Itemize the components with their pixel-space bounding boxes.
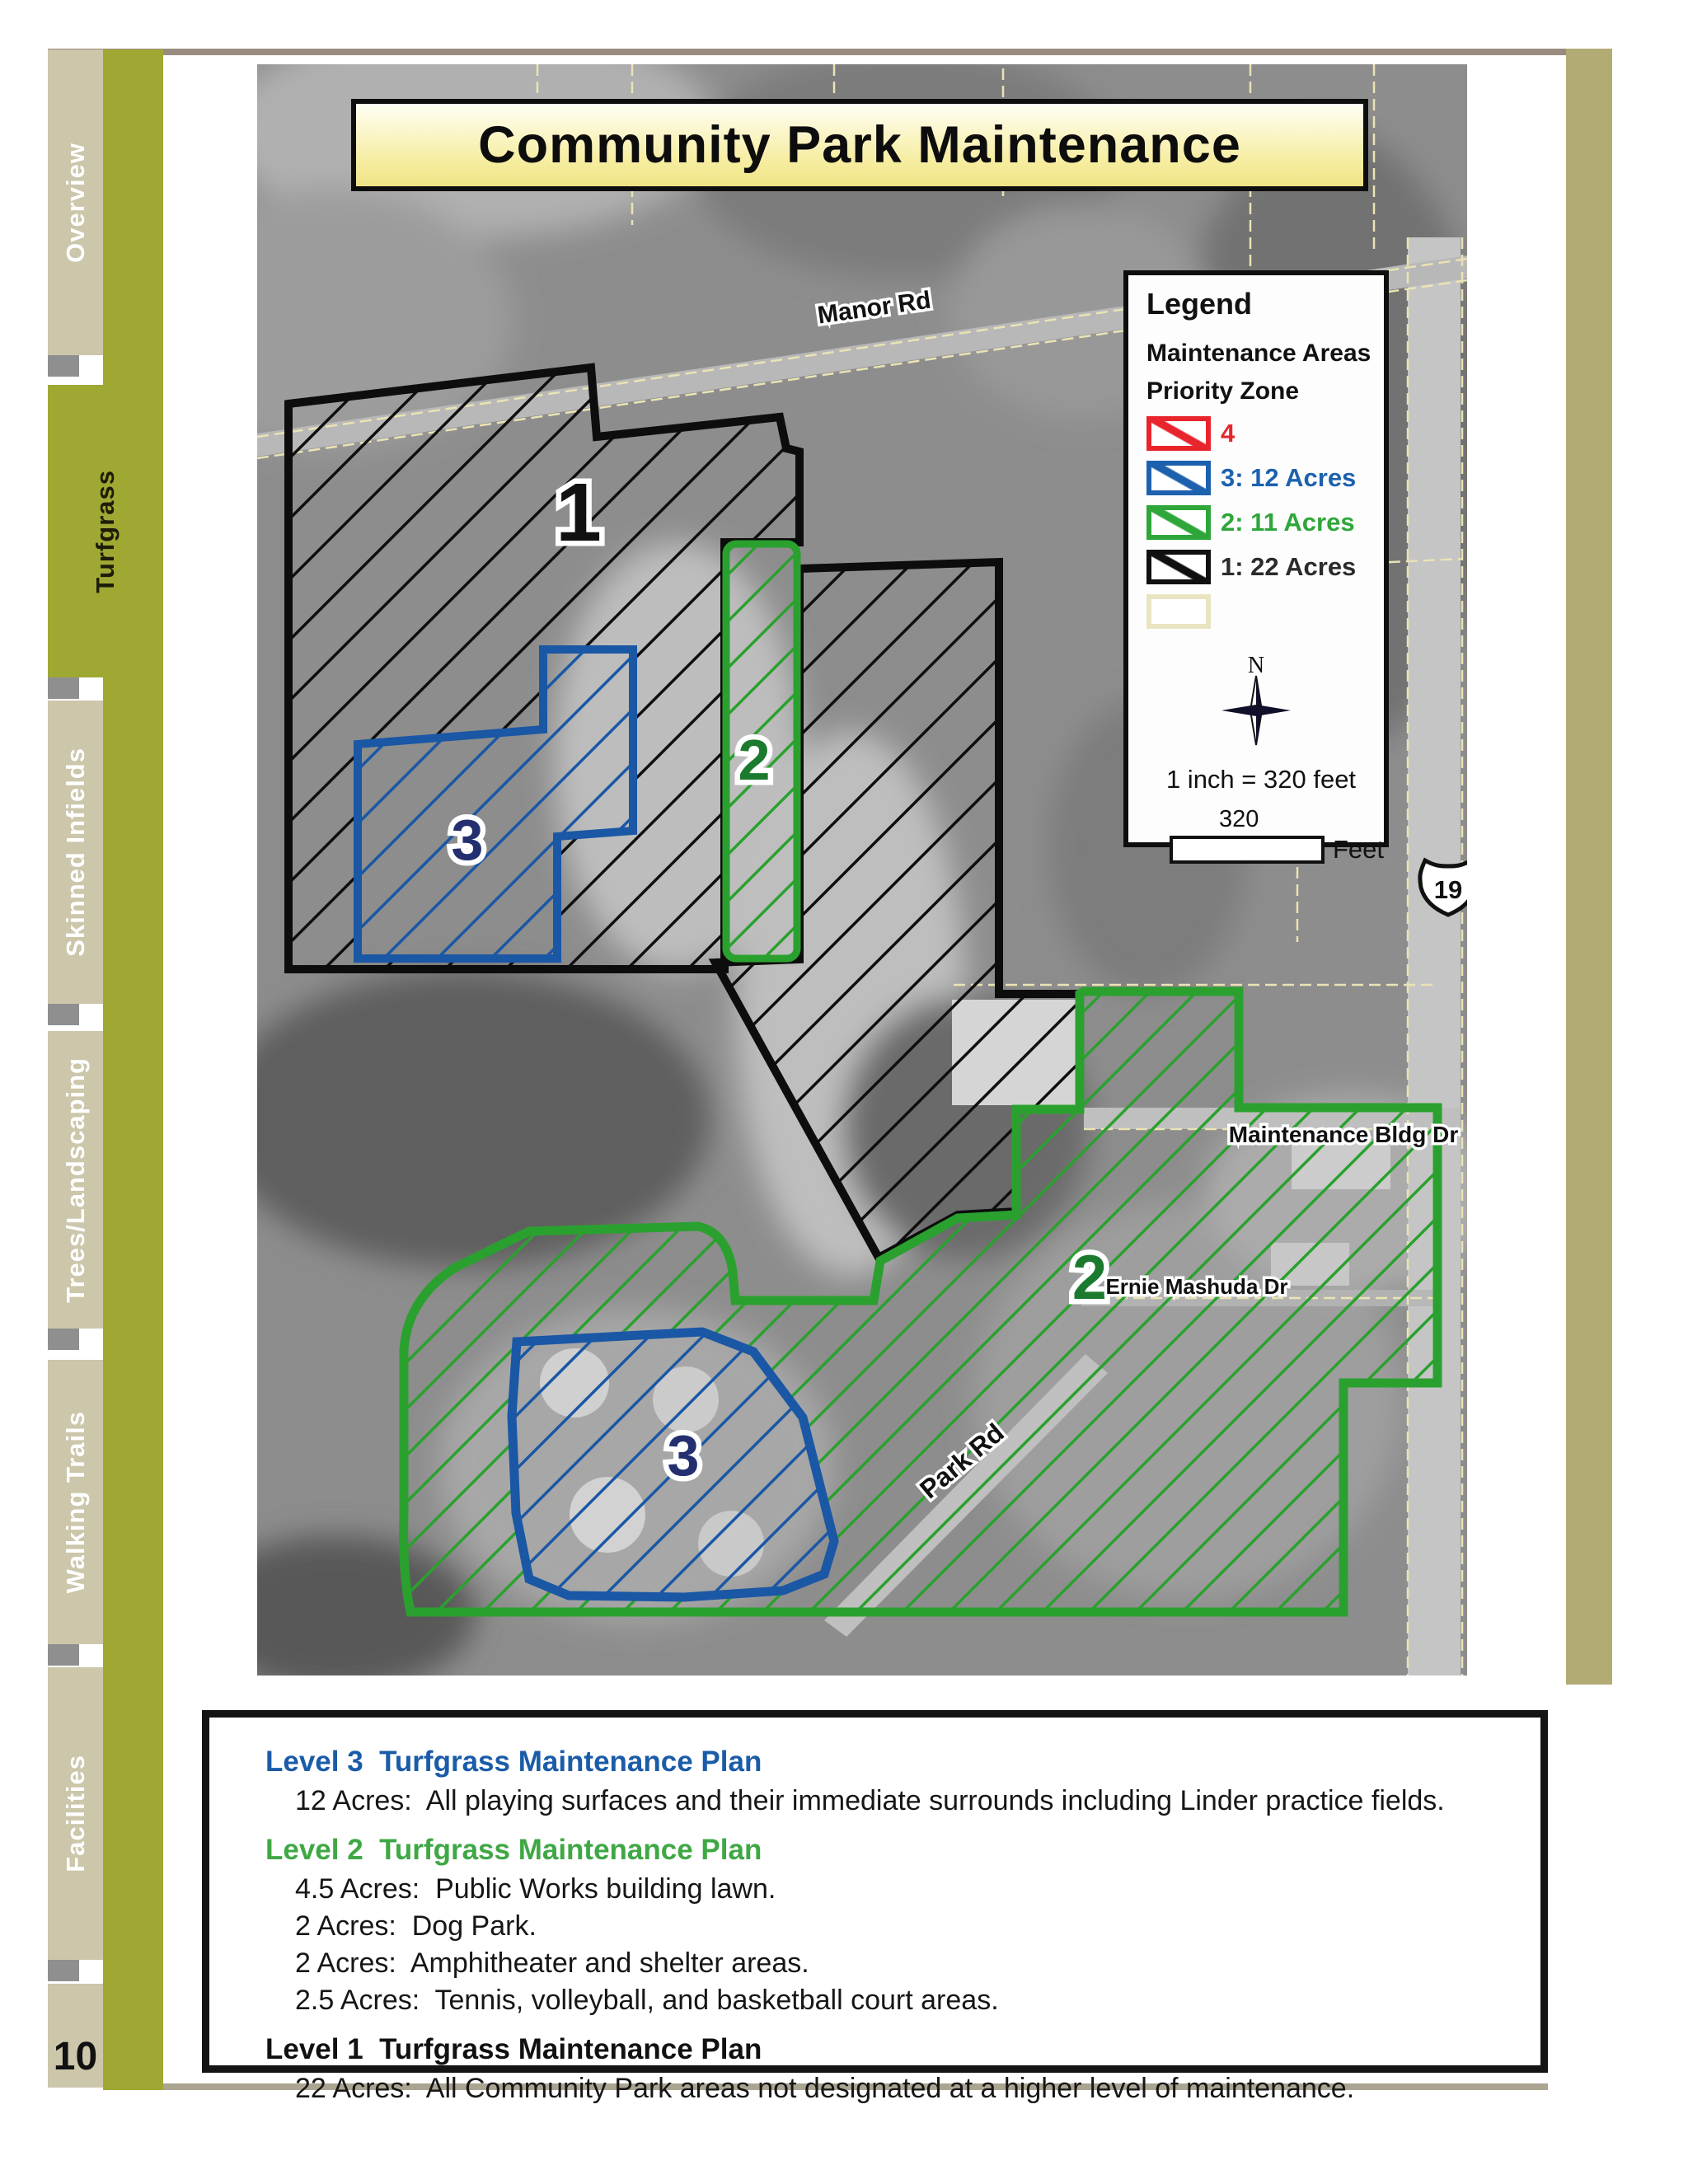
legend-item-parcel [1146,593,1384,630]
plan-item: 4.5 Acres: Public Works building lawn. [295,1873,1516,1905]
zone-2-strip-label: 2 [738,728,771,792]
legend-group-label: Priority Zone [1146,377,1384,405]
park-map: 1 2 3 2 3 Manor Rd Maintenance Bldg Dr E… [257,64,1467,1675]
scale-text: 1 inch = 320 feet [1138,765,1384,794]
sidebar-tab-facilities[interactable]: Facilities [48,1667,103,1960]
zone-1-swatch-icon [1146,550,1211,584]
tab-label: Trees/Landscaping [61,1057,91,1303]
sidebar-accent-bar [103,49,163,2090]
legend-title: Legend [1146,287,1384,321]
zone-2-main-label: 2 [1072,1243,1107,1313]
tab-label: Walking Trails [61,1411,91,1593]
plan-item: 2.5 Acres: Tennis, volleyball, and baske… [295,1985,1516,2017]
legend-item-label: 2: 11 Acres [1221,508,1355,537]
legend-item-zone3: 3: 12 Acres [1146,460,1384,496]
scale-unit: Feet [1333,835,1384,865]
route-19-number: 19 [1434,875,1462,904]
tab-label: Turfgrass [91,470,120,593]
top-rule [48,49,1566,55]
maintenance-bldg-dr-label: Maintenance Bldg Dr [1229,1122,1459,1147]
legend-item-zone2: 2: 11 Acres [1146,504,1384,541]
tab-separator-notch [48,1960,79,1981]
zone-4-swatch-icon [1146,416,1211,451]
scale-bar [1170,836,1325,864]
level-2-section: Level 2 Turfgrass Maintenance Plan 4.5 A… [265,1834,1516,2017]
level-1-section: Level 1 Turfgrass Maintenance Plan 22 Ac… [265,2033,1516,2105]
tab-separator-notch [48,677,79,699]
level-1-heading: Level 1 Turfgrass Maintenance Plan [265,2033,1516,2066]
plan-item: 22 Acres: All Community Park areas not d… [295,2073,1516,2105]
sidebar-tab-walking-trails[interactable]: Walking Trails [48,1360,103,1644]
map-title-banner: Community Park Maintenance [351,99,1368,191]
document-page: Overview Turfgrass Skinned Infields Tree… [0,0,1688,2184]
map-title: Community Park Maintenance [478,115,1241,175]
page-number: 10 [54,2034,97,2088]
legend-item-zone1: 1: 22 Acres [1146,549,1384,585]
tab-separator-notch [48,1329,79,1350]
legend-subtitle: Maintenance Areas [1146,340,1384,368]
tab-label: Facilities [61,1755,91,1872]
tab-label: Skinned Infields [61,748,91,957]
maintenance-plan-panel: Level 3 Turfgrass Maintenance Plan 12 Ac… [202,1710,1548,2073]
legend-item-label: 1: 22 Acres [1221,552,1356,582]
level-2-heading: Level 2 Turfgrass Maintenance Plan [265,1834,1516,1867]
sidebar-tab-turfgrass[interactable]: Turfgrass [48,385,163,677]
level-3-section: Level 3 Turfgrass Maintenance Plan 12 Ac… [265,1746,1516,1817]
sidebar-tab-overview[interactable]: Overview [48,49,103,355]
tab-separator-notch [48,1004,79,1025]
legend-item-zone4: 4 [1146,415,1384,452]
tab-separator-notch [48,1644,79,1666]
plan-item: 2 Acres: Amphitheater and shelter areas. [295,1947,1516,1980]
plan-item: 2 Acres: Dog Park. [295,1910,1516,1943]
sidebar-tab-trees-landscaping[interactable]: Trees/Landscaping [48,1031,103,1329]
map-legend: Legend Maintenance Areas Priority Zone 4… [1123,270,1389,847]
zone-3-upper-label: 3 [452,808,484,872]
sidebar-tab-skinned-infields[interactable]: Skinned Infields [48,701,103,1004]
scale-bar-row: Feet [1170,835,1384,865]
parcel-swatch-icon [1146,594,1211,629]
zone-3-swatch-icon [1146,461,1211,495]
scale-value: 320 [1219,806,1384,833]
tab-label: Overview [61,143,91,263]
north-label: N [1248,653,1264,678]
zone-3-lower-label: 3 [668,1423,700,1488]
zone-1-label: 1 [556,466,602,559]
page-number-block: 10 [48,1984,103,2088]
ernie-mashuda-dr-label: Ernie Mashuda Dr [1105,1274,1287,1299]
legend-item-label: 3: 12 Acres [1221,463,1356,493]
level-3-heading: Level 3 Turfgrass Maintenance Plan [265,1746,1516,1779]
zone-2-swatch-icon [1146,505,1211,540]
tab-separator-notch [48,355,79,377]
route-19-road [1408,237,1461,1675]
legend-item-label: 4 [1221,419,1235,448]
compass-rose: N [1211,651,1301,750]
plan-item: 12 Acres: All playing surfaces and their… [295,1785,1516,1817]
right-margin-band [1566,49,1612,1685]
